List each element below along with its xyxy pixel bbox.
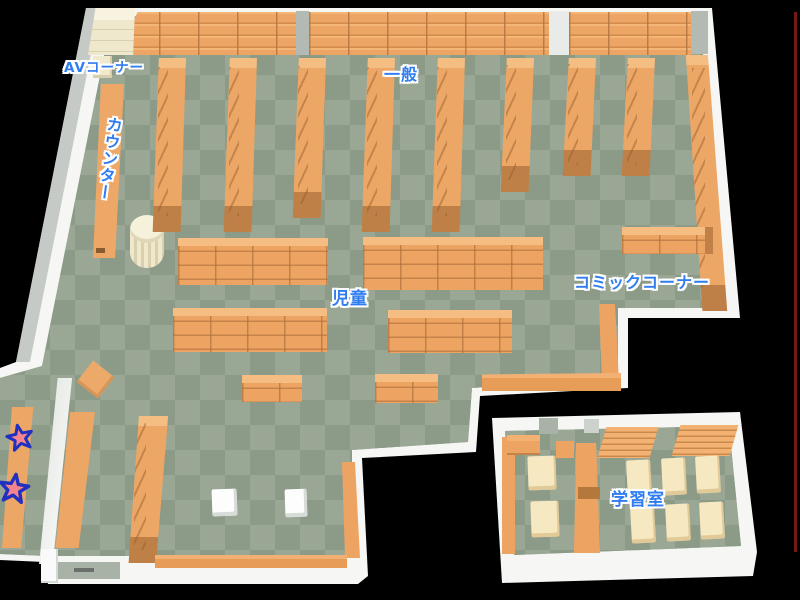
study-divider-top-piece	[556, 441, 574, 458]
study-top-left-shelf	[507, 435, 540, 455]
right-edge-line	[794, 12, 797, 552]
children-shelf-2	[363, 237, 543, 290]
bottom-wall-shelf-strip	[155, 555, 347, 568]
counter-desk-mark	[96, 248, 105, 253]
study-divider-notch	[578, 487, 600, 499]
study-table-left-2	[530, 501, 559, 538]
children-shelf-6	[375, 374, 438, 403]
entrance-door-mark	[74, 568, 94, 572]
study-table-5	[665, 503, 691, 541]
study-door-gap-2	[584, 419, 599, 433]
label-comic-corner: コミックコーナー	[574, 269, 710, 293]
library-floor-map: AVコーナー カウンター 一般 児童 コミックコーナー 学習室	[0, 0, 800, 600]
study-shelf-unit-1	[598, 427, 659, 458]
top-wall-shelf-left	[120, 12, 296, 55]
label-general: 一般	[384, 61, 418, 85]
star-marker-icon	[2, 420, 38, 456]
children-shelf-5	[242, 375, 302, 402]
children-shelf-1	[178, 238, 328, 285]
children-shelf-3	[173, 308, 327, 352]
children-shelf-4	[388, 310, 512, 353]
study-table-left-1	[527, 456, 556, 491]
top-wall-shelf-middle	[309, 12, 549, 55]
label-children: 児童	[332, 284, 368, 309]
study-table-4	[630, 505, 656, 543]
study-table-3	[695, 455, 721, 493]
floor-box-2	[285, 489, 308, 518]
study-shelf-unit-2	[672, 425, 739, 456]
top-door-gap-2	[549, 11, 569, 55]
star-marker-icon	[0, 470, 33, 508]
comic-shelf-horizontal	[622, 227, 713, 254]
floor-box-1	[212, 489, 238, 517]
top-door-gap-1	[296, 11, 309, 55]
label-av-corner: AVコーナー	[64, 56, 144, 76]
top-door-gap-3	[691, 11, 708, 54]
av-corner-shelf	[88, 8, 135, 55]
study-door-gap-1	[539, 418, 558, 434]
bottom-low-shelf-strip	[482, 373, 621, 391]
label-study-room: 学習室	[611, 485, 665, 510]
top-wall-shelf-right	[569, 12, 691, 55]
study-table-6	[699, 501, 725, 539]
entrance-wall-block	[41, 549, 58, 583]
